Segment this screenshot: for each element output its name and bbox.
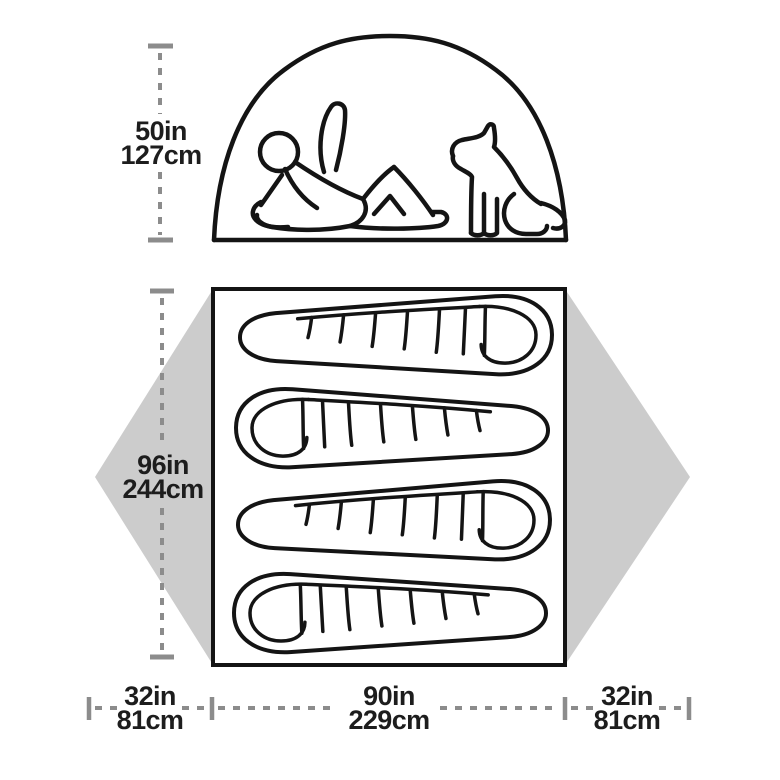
tent-dimensions-diagram: 50in 127cm 96in 244cm 32in 81cm 90in 229… <box>0 0 780 780</box>
peak-height-cm: 127cm <box>120 143 201 167</box>
peak-height-label: 50in 127cm <box>120 119 201 167</box>
diagram-canvas <box>0 0 780 780</box>
vestibule-right-label: 32in 81cm <box>594 684 661 732</box>
vestibule-right-cm: 81cm <box>594 708 661 732</box>
floor-width-cm: 229cm <box>348 708 429 732</box>
person-figure <box>253 103 447 229</box>
floor-length-label: 96in 244cm <box>122 453 203 501</box>
floor-width-label: 90in 229cm <box>348 684 429 732</box>
floor-length-cm: 244cm <box>122 477 203 501</box>
vestibule-left-label: 32in 81cm <box>117 684 184 732</box>
tent-floor <box>213 289 565 665</box>
vestibule-left-cm: 81cm <box>117 708 184 732</box>
